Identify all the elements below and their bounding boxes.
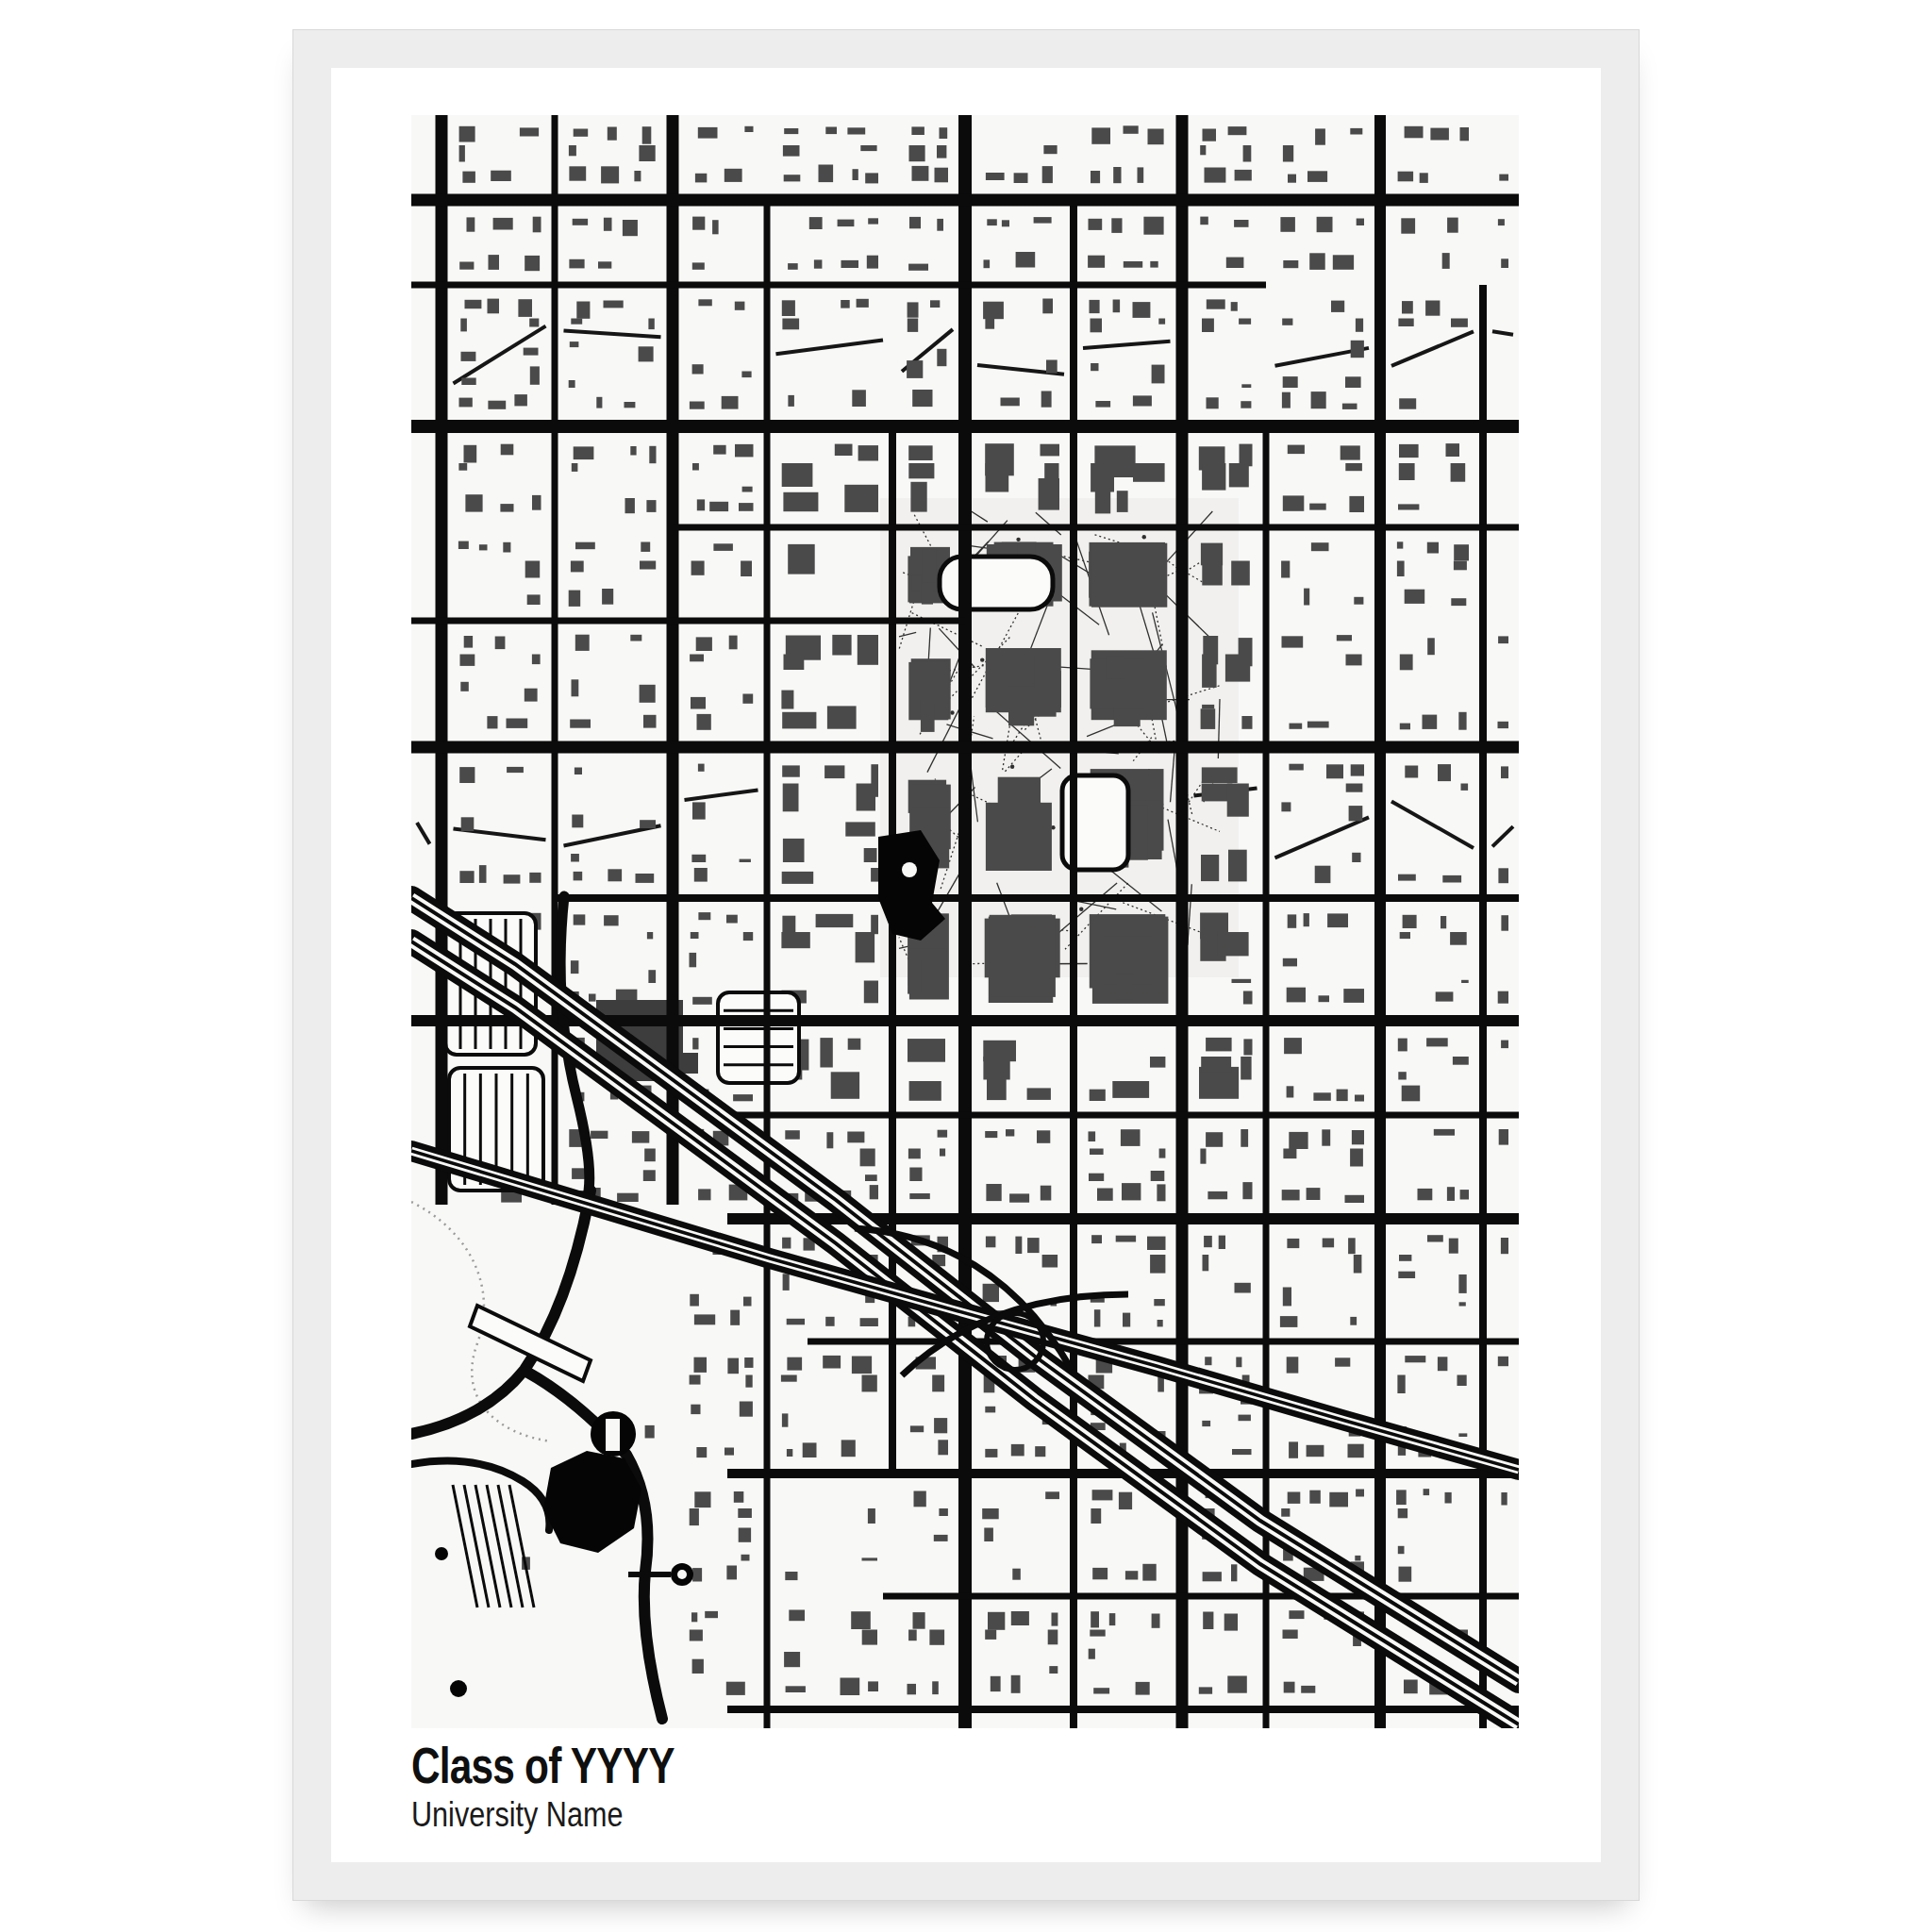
poster-title: Class of YYYY xyxy=(411,1740,675,1792)
city-map xyxy=(411,115,1519,1728)
poster-frame: Class of YYYY University Name xyxy=(293,30,1639,1900)
poster-subtitle: University Name xyxy=(411,1796,691,1834)
poster-caption: Class of YYYY University Name xyxy=(411,1740,740,1834)
poster-matte: Class of YYYY University Name xyxy=(331,68,1601,1862)
page-background: Class of YYYY University Name xyxy=(0,0,1932,1932)
